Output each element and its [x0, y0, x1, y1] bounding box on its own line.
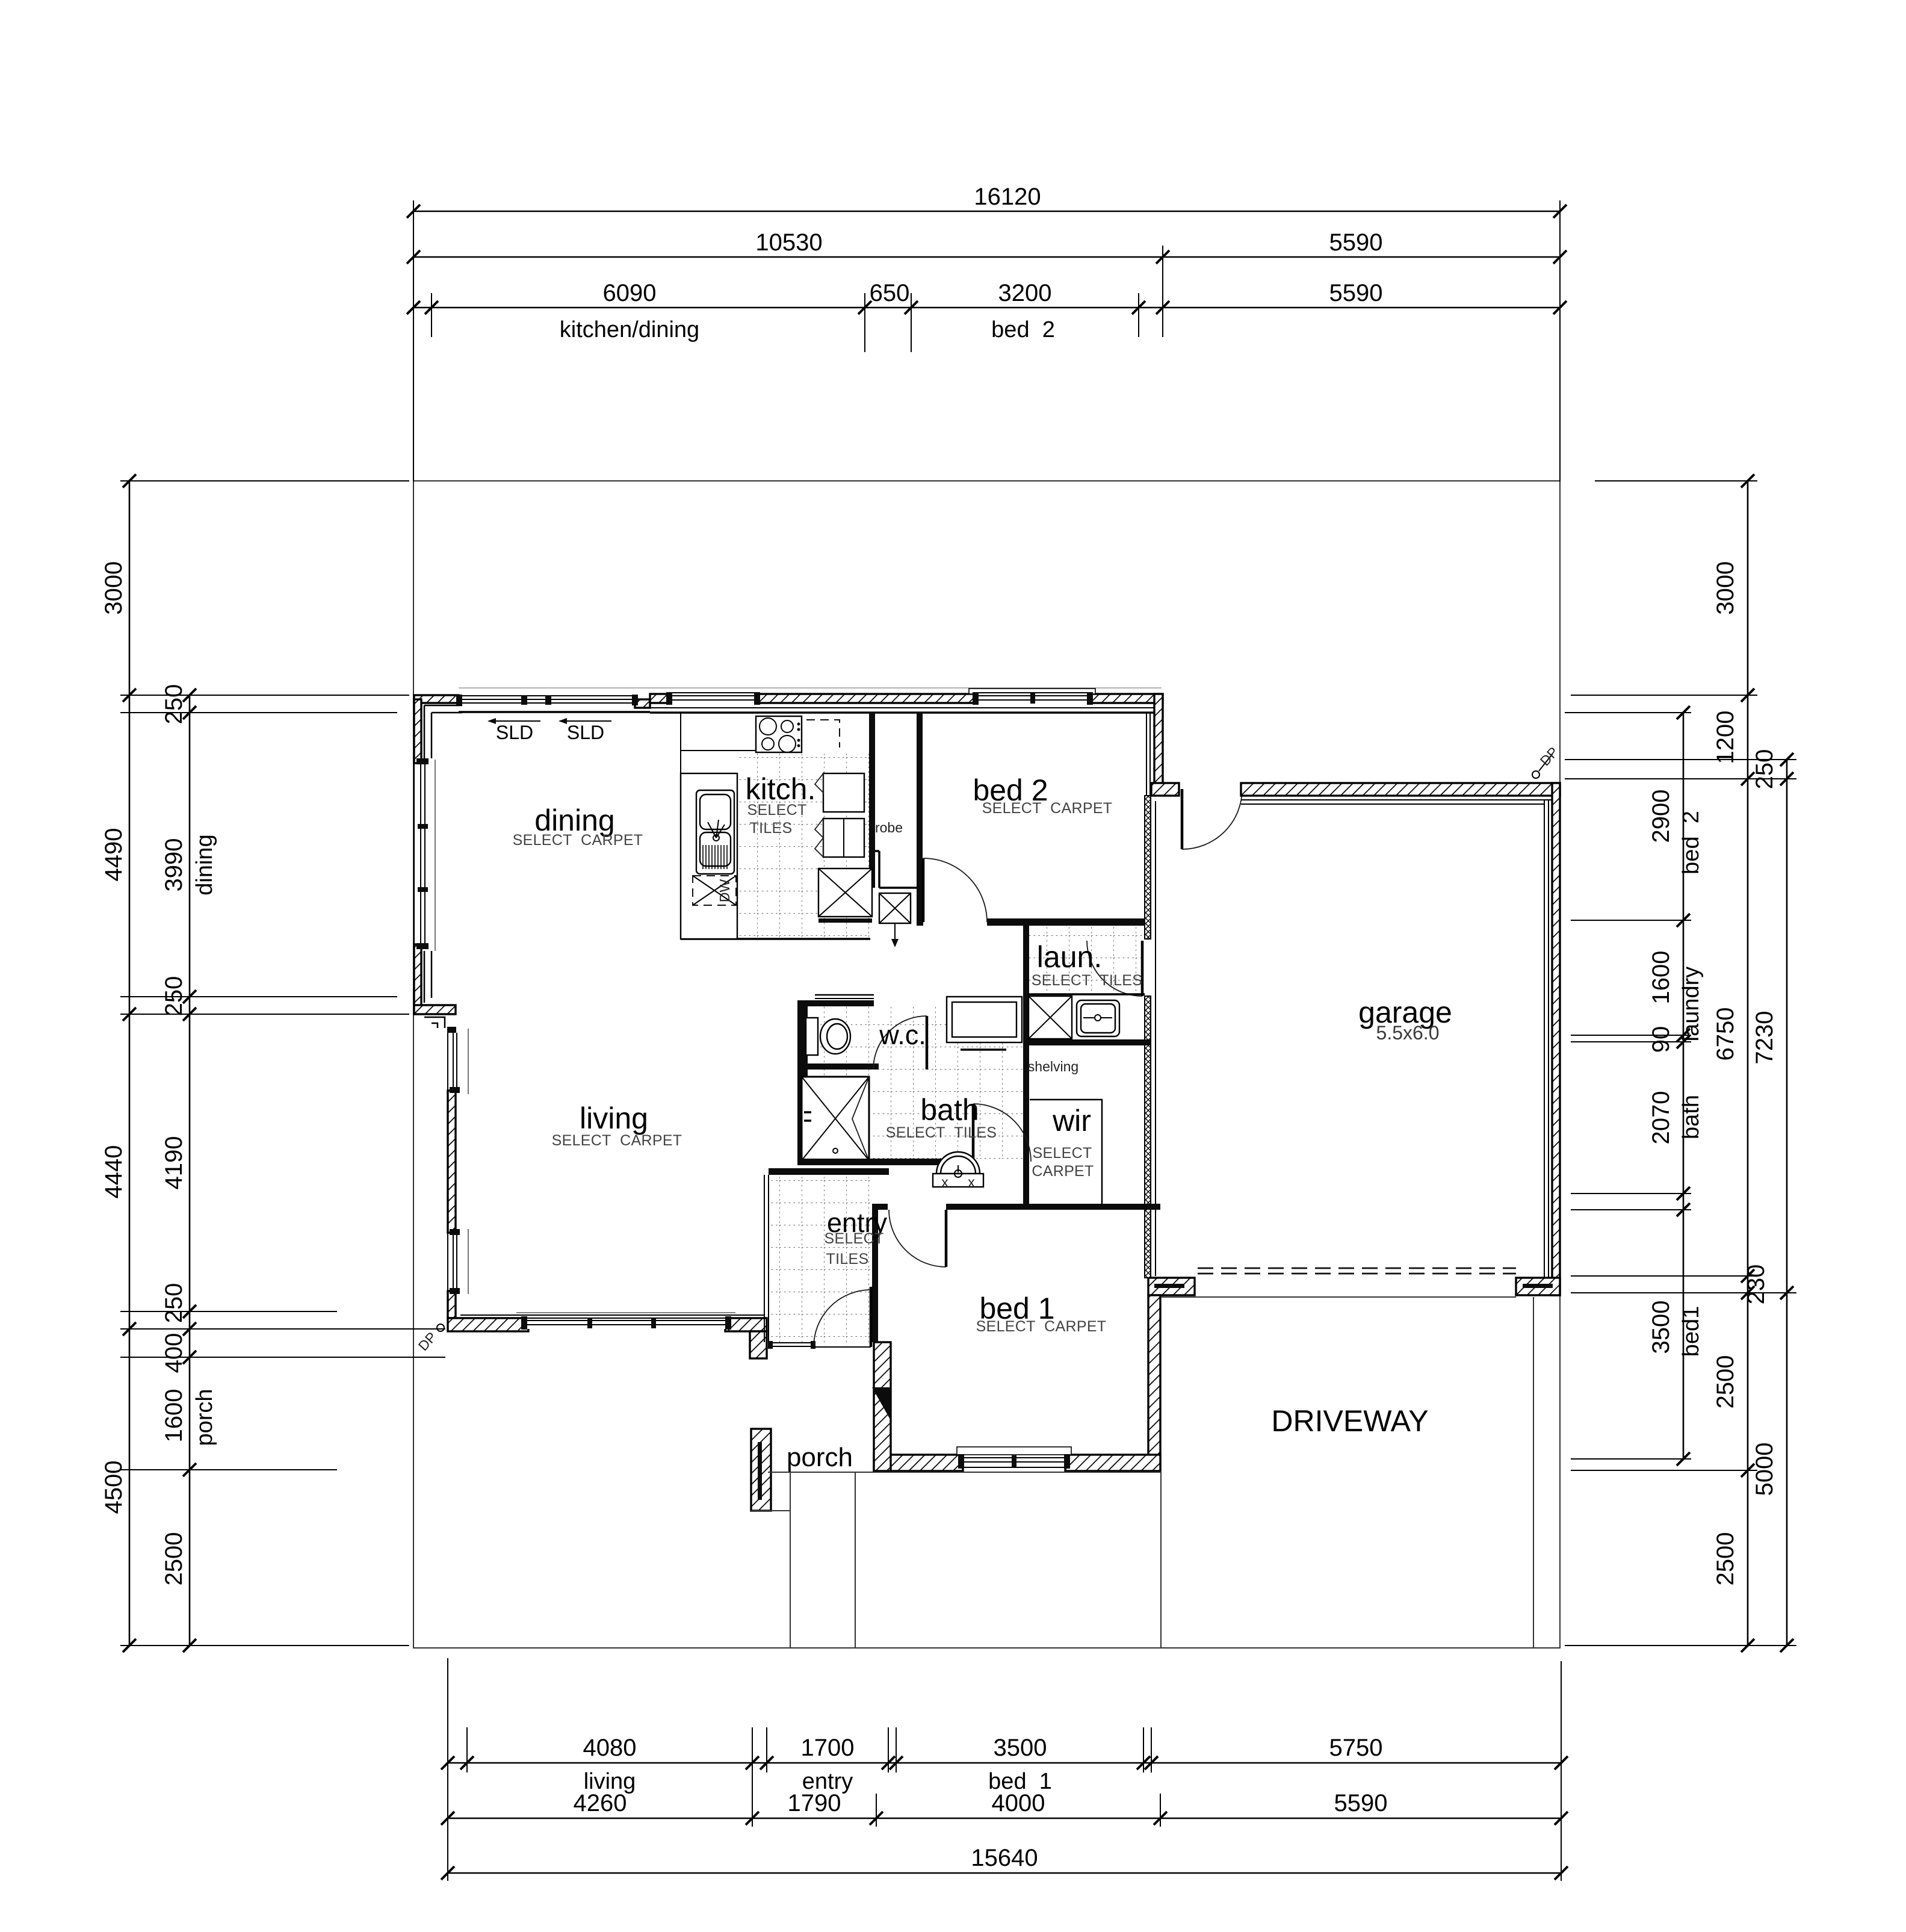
svg-text:DRIVEWAY: DRIVEWAY [1271, 1404, 1428, 1438]
svg-text:4440: 4440 [101, 1145, 127, 1199]
svg-text:bath: bath [920, 1093, 979, 1127]
svg-text:bed 2: bed 2 [991, 317, 1055, 342]
svg-text:250: 250 [161, 1283, 187, 1324]
svg-text:3200: 3200 [998, 280, 1052, 306]
svg-text:1600: 1600 [1648, 951, 1674, 1005]
svg-text:230: 230 [1743, 1265, 1769, 1305]
svg-text:w.c.: w.c. [879, 1020, 926, 1050]
svg-text:SELECT CARPET: SELECT CARPET [982, 800, 1113, 817]
svg-text:5590: 5590 [1329, 229, 1383, 256]
svg-text:laundry: laundry [1679, 967, 1704, 1042]
svg-text:650: 650 [870, 280, 910, 306]
svg-text:1200: 1200 [1712, 711, 1739, 764]
svg-text:SLD: SLD [567, 722, 604, 743]
svg-text:robe: robe [875, 820, 903, 835]
svg-text:SELECT: SELECT [747, 802, 806, 819]
svg-text:1790: 1790 [788, 1790, 841, 1816]
svg-text:TILES: TILES [750, 820, 793, 837]
svg-text:16120: 16120 [974, 184, 1041, 210]
svg-text:living: living [580, 1101, 648, 1135]
svg-text:250: 250 [161, 684, 187, 725]
svg-text:2500: 2500 [1712, 1532, 1739, 1586]
svg-text:porch: porch [787, 1443, 853, 1472]
svg-text:1600: 1600 [161, 1389, 187, 1443]
svg-text:porch: porch [192, 1389, 217, 1446]
svg-text:400: 400 [161, 1333, 187, 1373]
svg-text:4080: 4080 [583, 1735, 637, 1761]
svg-text:SELECT CARPET: SELECT CARPET [976, 1318, 1107, 1335]
svg-text:laun.: laun. [1037, 940, 1102, 974]
svg-text:4260: 4260 [574, 1790, 627, 1816]
svg-text:5590: 5590 [1334, 1790, 1388, 1816]
svg-text:SELECT CARPET: SELECT CARPET [552, 1132, 682, 1149]
svg-text:6750: 6750 [1712, 1008, 1739, 1061]
svg-text:3000: 3000 [101, 562, 127, 615]
svg-text:90: 90 [1648, 1026, 1674, 1053]
svg-text:3500: 3500 [1648, 1301, 1674, 1354]
svg-text:3500: 3500 [994, 1735, 1047, 1761]
svg-text:5590: 5590 [1329, 280, 1383, 306]
svg-text:2500: 2500 [161, 1532, 187, 1586]
svg-text:2070: 2070 [1648, 1091, 1674, 1145]
svg-text:TILES: TILES [826, 1251, 869, 1268]
svg-text:SLD: SLD [496, 722, 533, 743]
svg-text:250: 250 [161, 976, 187, 1017]
svg-text:CARPET: CARPET [1032, 1163, 1094, 1180]
svg-text:SELECT TILES: SELECT TILES [886, 1124, 997, 1141]
svg-text:kitchen/dining: kitchen/dining [560, 317, 699, 342]
svg-text:bath: bath [1679, 1095, 1704, 1139]
svg-text:shelving: shelving [1028, 1059, 1078, 1074]
svg-text:SELECT TILES: SELECT TILES [1032, 972, 1143, 989]
svg-text:4190: 4190 [161, 1136, 187, 1190]
svg-text:bed 2: bed 2 [1679, 811, 1704, 875]
svg-text:4490: 4490 [101, 828, 127, 882]
svg-text:3990: 3990 [161, 838, 187, 892]
svg-text:250: 250 [1751, 749, 1778, 790]
svg-text:10530: 10530 [755, 229, 822, 256]
svg-text:kitch.: kitch. [746, 772, 816, 806]
svg-text:15640: 15640 [971, 1845, 1038, 1871]
svg-text:5750: 5750 [1329, 1735, 1383, 1761]
svg-text:1700: 1700 [801, 1735, 855, 1761]
svg-text:SELECT CARPET: SELECT CARPET [513, 832, 643, 849]
svg-text:DW: DW [717, 879, 732, 903]
svg-text:wir: wir [1052, 1104, 1091, 1138]
svg-text:2900: 2900 [1648, 790, 1674, 843]
svg-text:5.5x6.0: 5.5x6.0 [1376, 1022, 1440, 1044]
svg-text:SELECT: SELECT [824, 1230, 883, 1247]
svg-text:3000: 3000 [1712, 562, 1739, 615]
svg-text:6090: 6090 [603, 280, 657, 306]
svg-text:bed1: bed1 [1679, 1306, 1704, 1357]
svg-text:x: x [968, 1174, 975, 1190]
svg-text:5000: 5000 [1751, 1443, 1778, 1496]
svg-text:dining: dining [192, 834, 217, 895]
svg-text:4500: 4500 [101, 1461, 127, 1514]
svg-text:4000: 4000 [992, 1790, 1045, 1816]
svg-text:x: x [941, 1174, 948, 1190]
svg-text:7230: 7230 [1751, 1011, 1778, 1065]
svg-text:2500: 2500 [1712, 1355, 1739, 1409]
svg-text:SELECT: SELECT [1032, 1145, 1092, 1162]
